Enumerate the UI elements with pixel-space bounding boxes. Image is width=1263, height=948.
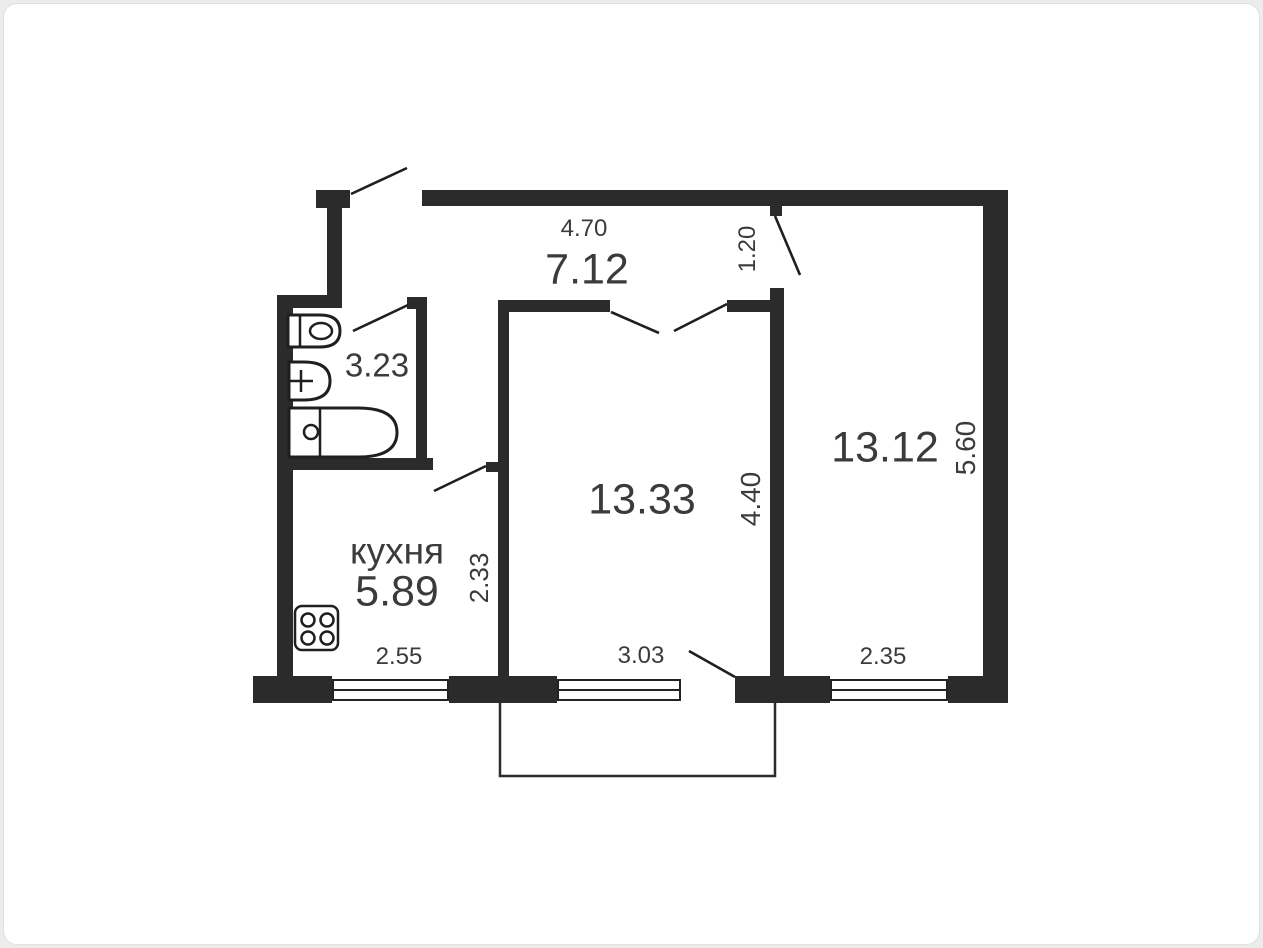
floor-plan-page: 4.70 7.12 1.20 3.23 кухня 5.89 2.33 2.55… xyxy=(0,0,1263,948)
bedroom-depth-dim: 5.60 xyxy=(952,421,980,476)
balcony-outline xyxy=(500,703,775,776)
living-door-swing-left xyxy=(611,312,659,333)
living-room-width-dim: 3.03 xyxy=(618,644,665,668)
kitchen-depth-dim: 2.33 xyxy=(466,553,492,604)
hallway-width-dim: 4.70 xyxy=(561,217,608,241)
toilet-icon xyxy=(288,315,340,347)
floor-plan: 4.70 7.12 1.20 3.23 кухня 5.89 2.33 2.55… xyxy=(0,0,1263,948)
bedroom-area-label: 13.12 xyxy=(831,427,939,470)
hallway-area-label: 7.12 xyxy=(545,249,629,292)
kitchen-area-label: 5.89 xyxy=(355,571,439,614)
bathtub-icon xyxy=(289,408,397,457)
living-room-area-label: 13.33 xyxy=(588,479,696,522)
sink-icon xyxy=(289,362,330,400)
bedroom-door-swing xyxy=(775,216,800,275)
entry-door-swing xyxy=(351,168,407,194)
bathroom-area-label: 3.23 xyxy=(345,349,409,382)
stove-icon xyxy=(295,606,338,650)
living-door-swing-right xyxy=(674,304,727,331)
balcony-door-swing xyxy=(689,651,735,677)
bathroom-door-swing xyxy=(353,305,408,331)
plan-linework xyxy=(0,0,1263,948)
bedroom-door-dim: 1.20 xyxy=(736,226,760,273)
kitchen-door-swing xyxy=(434,466,486,491)
kitchen-name-label: кухня xyxy=(350,533,444,570)
bedroom-width-dim: 2.35 xyxy=(860,645,907,669)
kitchen-width-dim: 2.55 xyxy=(376,645,423,669)
living-room-depth-dim: 4.40 xyxy=(737,472,765,527)
